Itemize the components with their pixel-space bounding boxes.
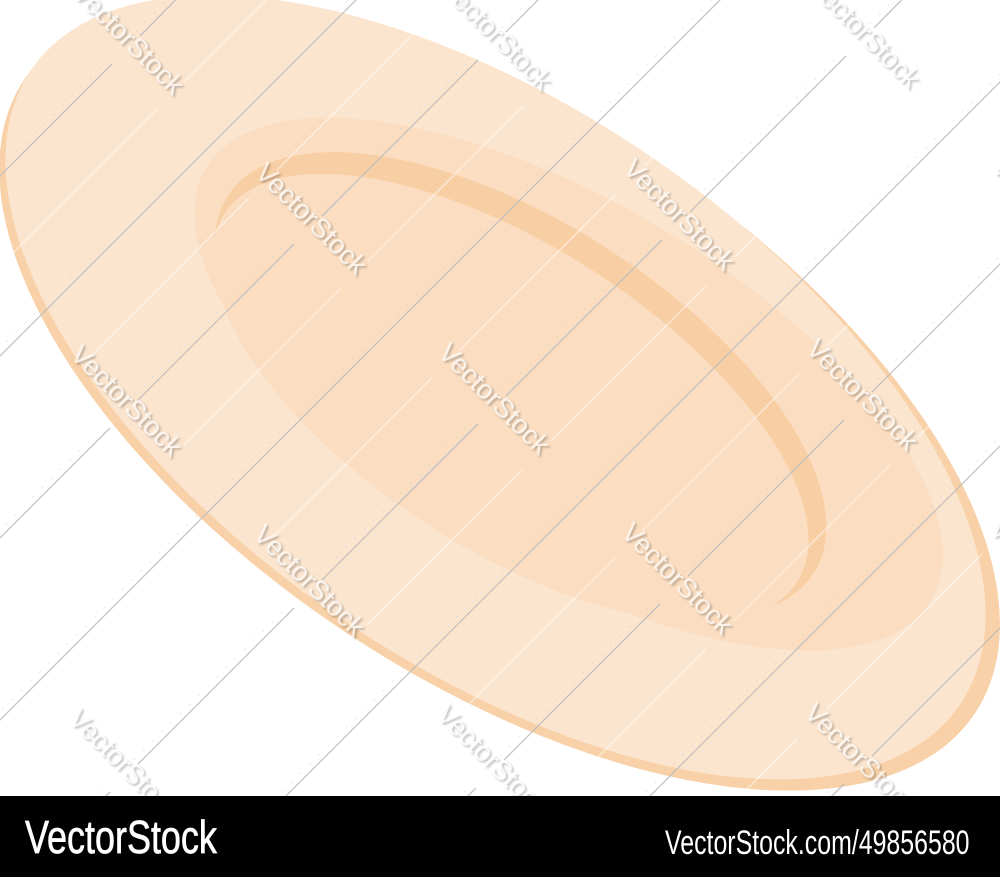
svg-text:VectorStock: VectorStock xyxy=(25,812,217,863)
svg-text:VectorStock.com/49856580: VectorStock.com/49856580 xyxy=(665,824,970,862)
